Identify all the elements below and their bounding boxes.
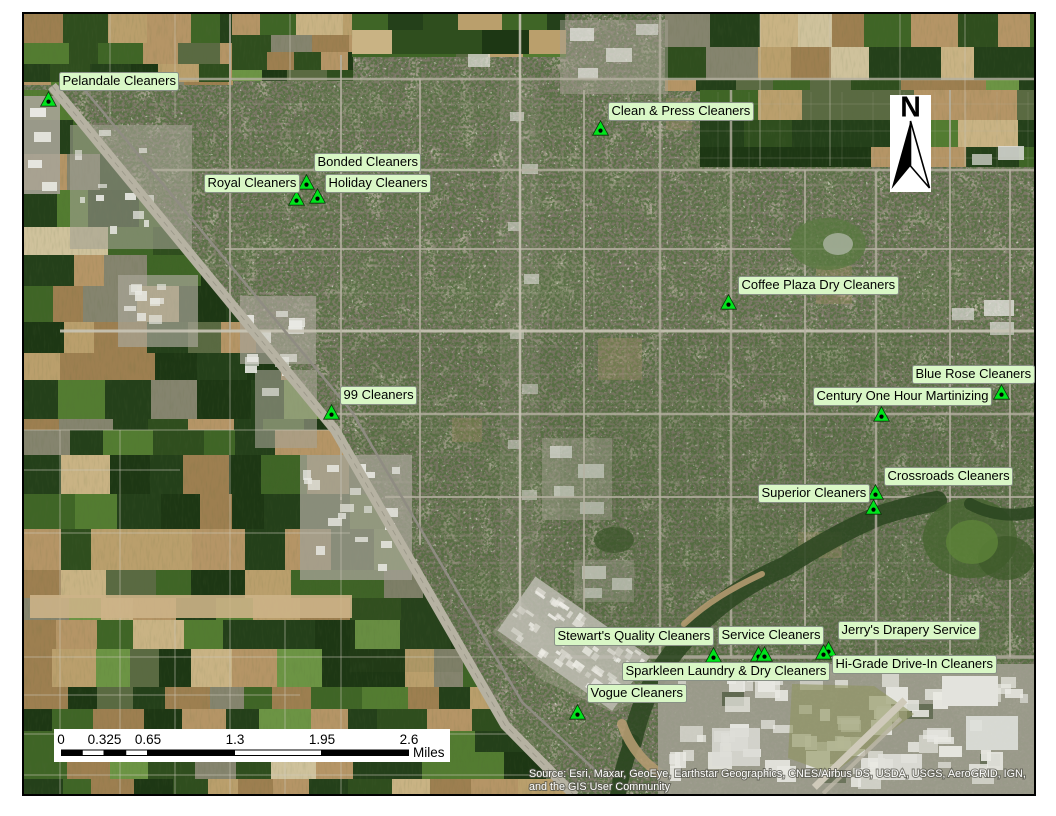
svg-text:N: N — [900, 95, 921, 124]
svg-text:1.95: 1.95 — [309, 732, 335, 747]
svg-text:1.3: 1.3 — [226, 732, 245, 747]
svg-text:0.65: 0.65 — [135, 732, 161, 747]
svg-text:0.325: 0.325 — [88, 732, 122, 747]
svg-text:0: 0 — [57, 732, 65, 747]
svg-text:Miles: Miles — [413, 745, 445, 760]
svg-text:and the GIS User Community: and the GIS User Community — [529, 781, 671, 793]
svg-text:Source: Esri, Maxar, GeoEye, E: Source: Esri, Maxar, GeoEye, Earthstar G… — [529, 768, 1026, 780]
